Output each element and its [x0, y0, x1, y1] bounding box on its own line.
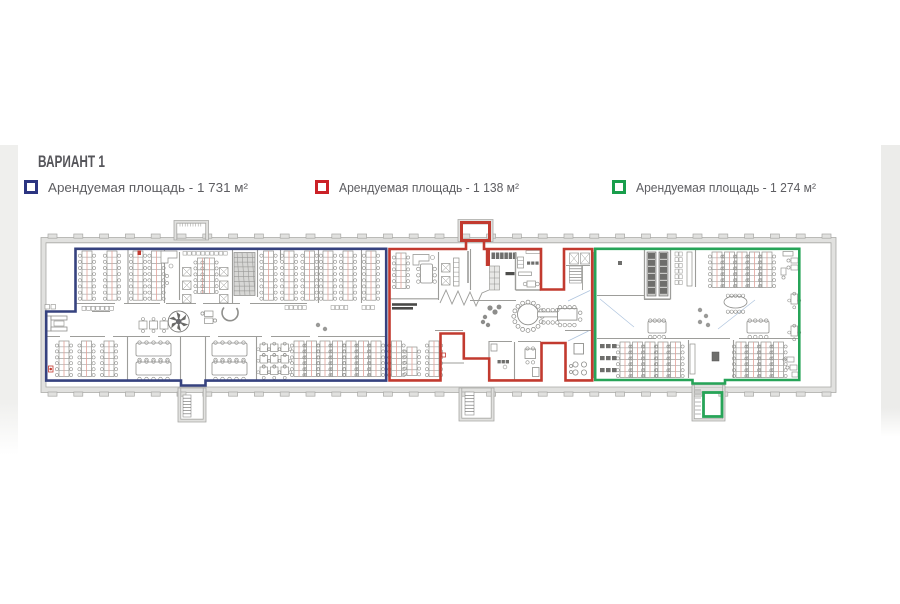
- svg-text:Арендуемая площадь - 1 138 м²: Арендуемая площадь - 1 138 м²: [339, 180, 520, 195]
- svg-text:Арендуемая площадь - 1 731 м²: Арендуемая площадь - 1 731 м²: [48, 180, 249, 195]
- svg-text:ВАРИАНТ 1: ВАРИАНТ 1: [38, 153, 105, 171]
- svg-text:Арендуемая площадь - 1 274 м²: Арендуемая площадь - 1 274 м²: [636, 180, 817, 195]
